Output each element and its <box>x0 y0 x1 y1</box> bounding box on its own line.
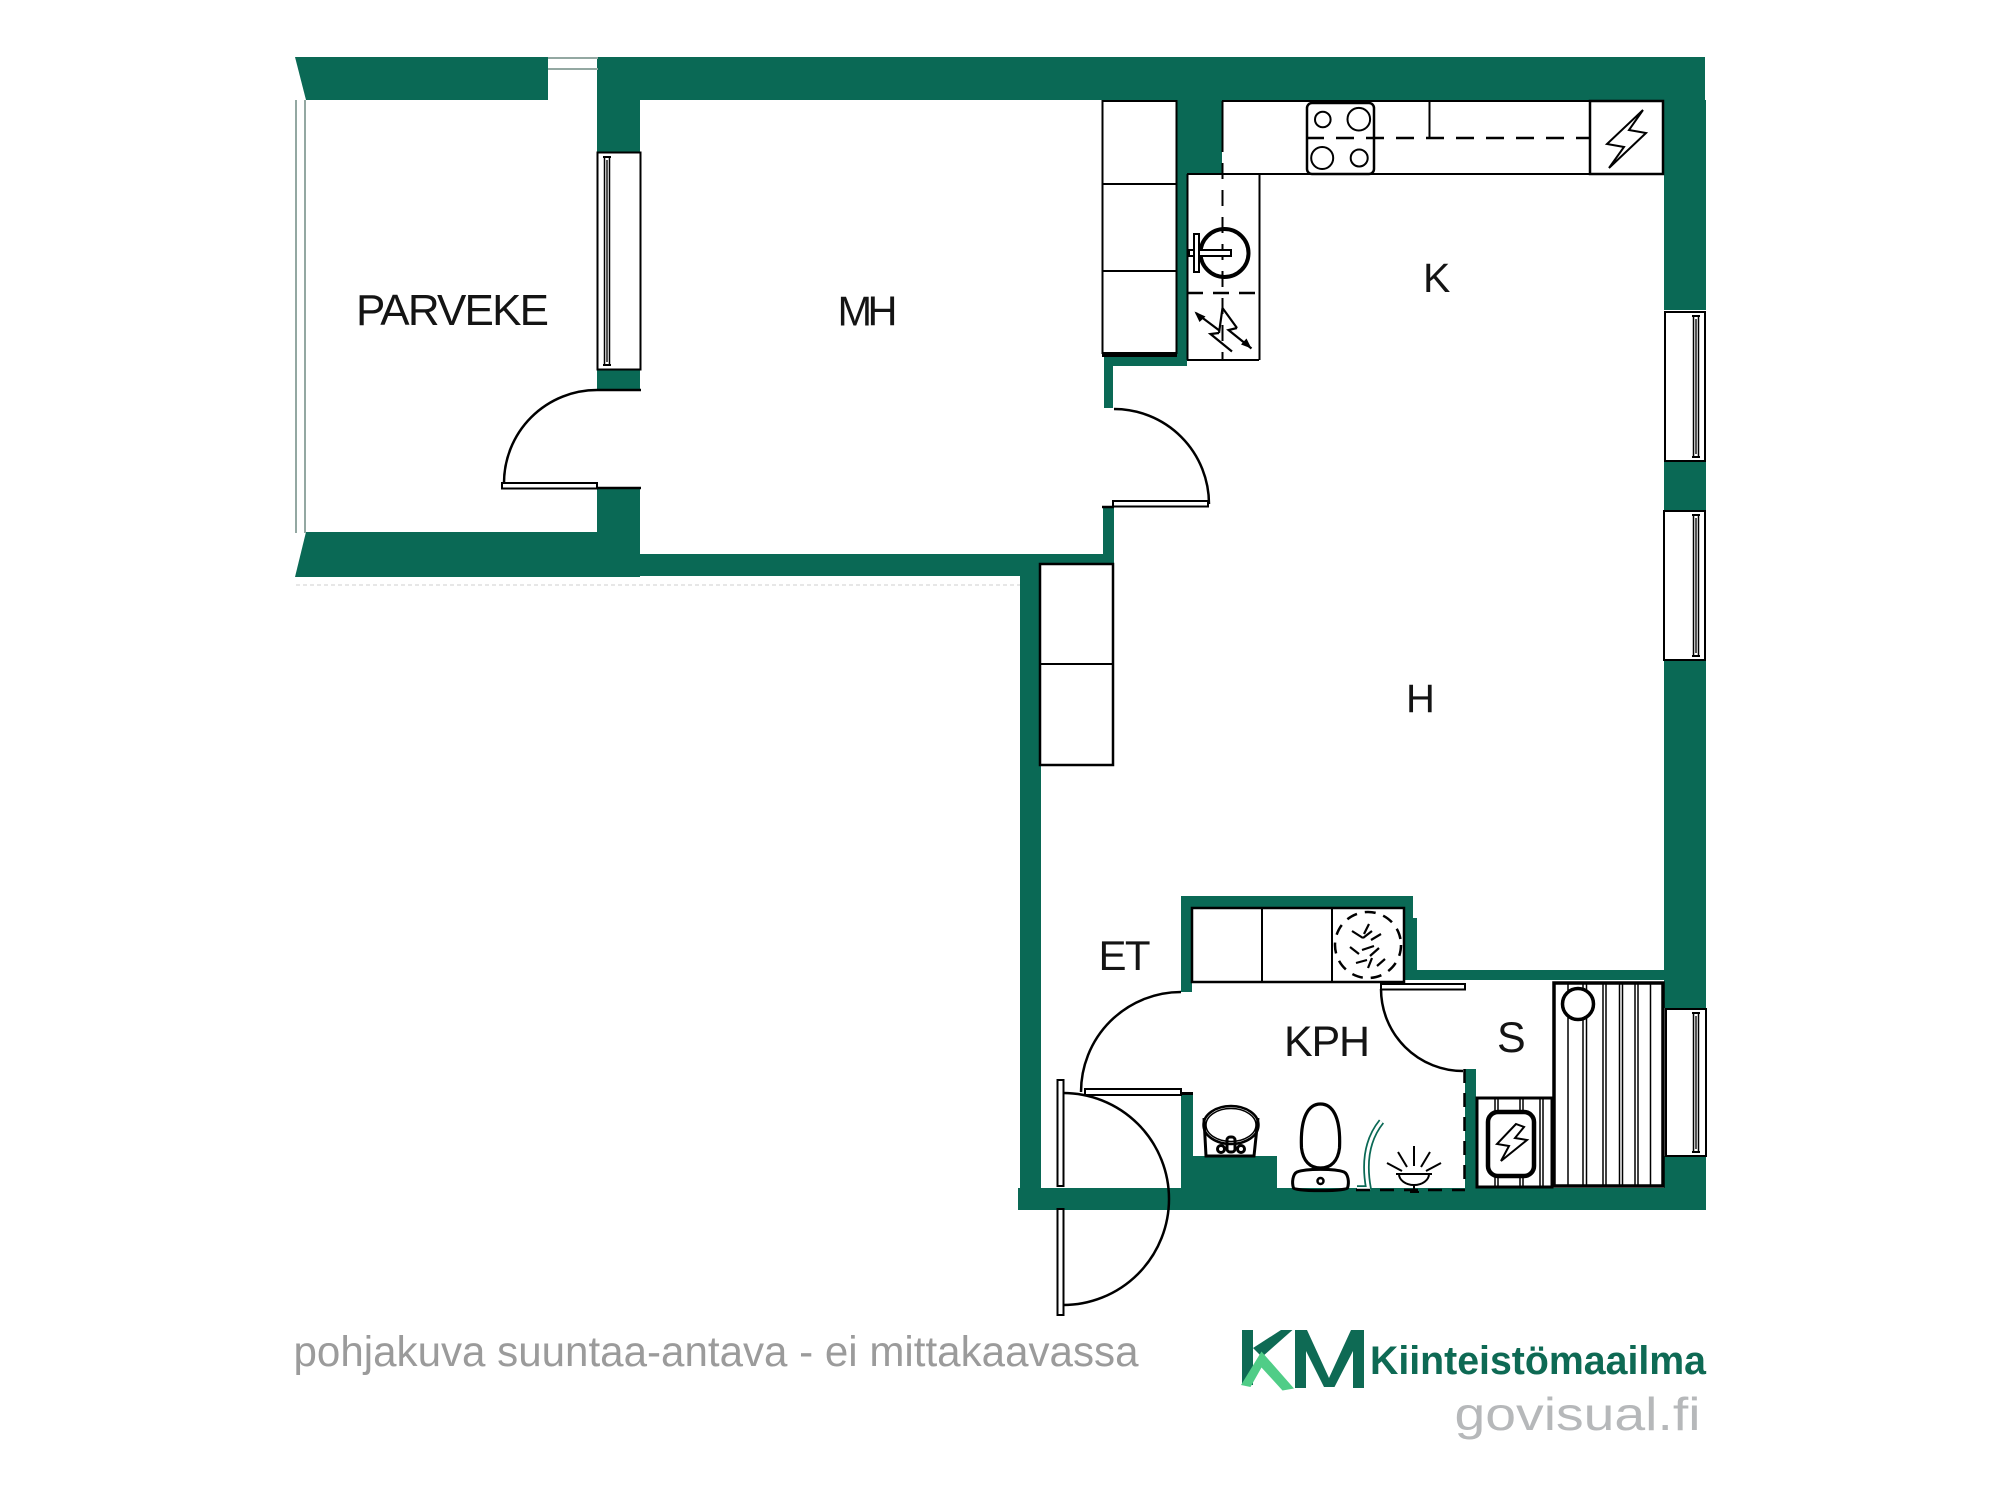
svg-text:pohjakuva suuntaa-antava - ei: pohjakuva suuntaa-antava - ei mittakaava… <box>294 1329 1139 1376</box>
svg-text:H: H <box>1406 677 1435 721</box>
svg-text:KPH: KPH <box>1284 1018 1370 1066</box>
svg-text:ET: ET <box>1099 932 1151 979</box>
svg-text:K: K <box>1423 255 1450 301</box>
svg-text:PARVEKE: PARVEKE <box>356 286 549 335</box>
svg-text:Kiinteistömaailma: Kiinteistömaailma <box>1370 1339 1707 1383</box>
svg-text:MH: MH <box>838 288 898 335</box>
svg-text:S: S <box>1497 1014 1526 1062</box>
svg-text:govisual.fi: govisual.fi <box>1455 1388 1701 1440</box>
